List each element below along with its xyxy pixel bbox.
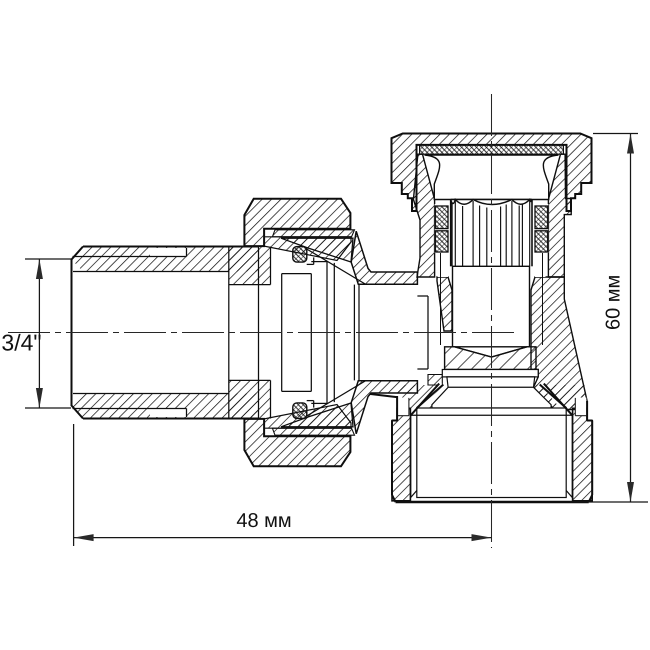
svg-text:60 мм: 60 мм: [603, 275, 625, 330]
svg-text:48 мм: 48 мм: [236, 510, 291, 532]
svg-text:3/4": 3/4": [1, 330, 41, 356]
